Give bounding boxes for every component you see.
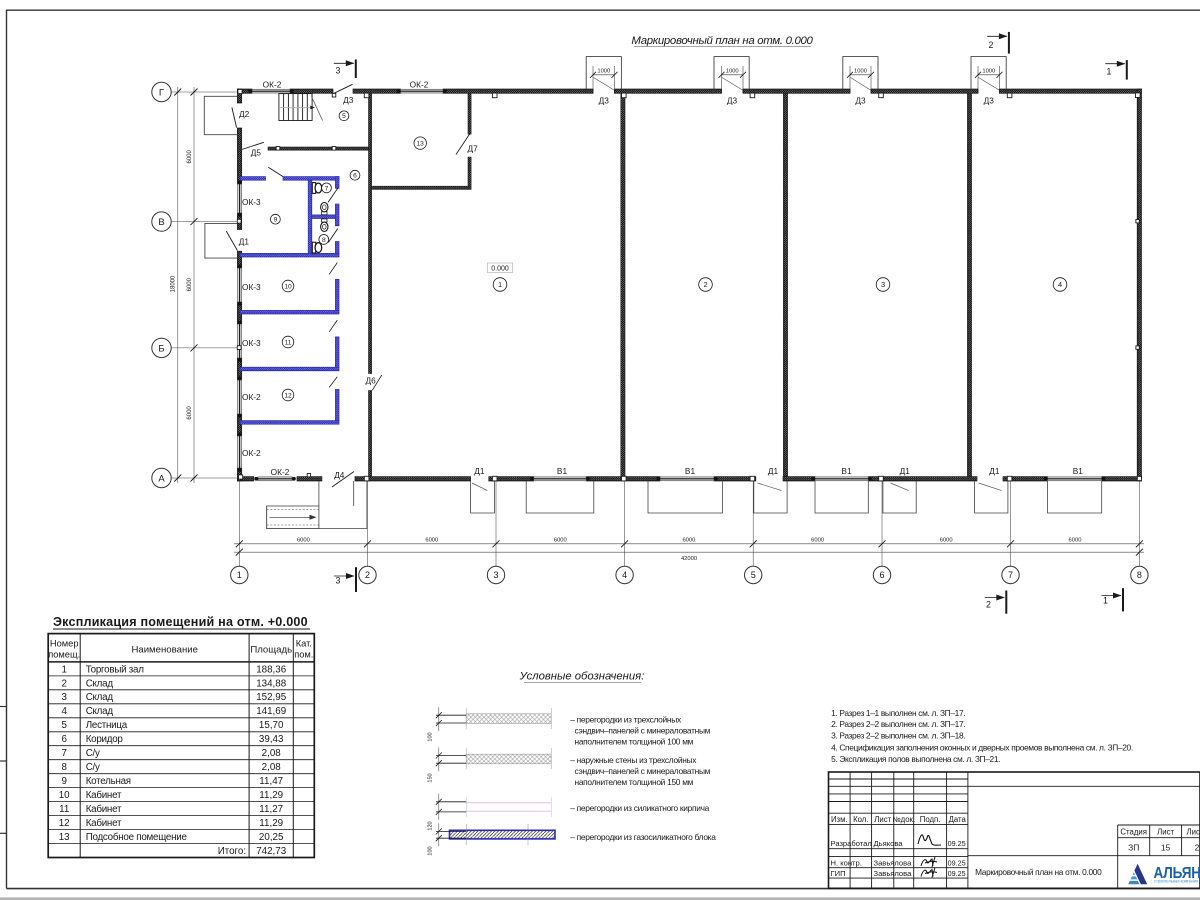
svg-text:Склад: Склад — [86, 706, 114, 717]
svg-text:Г: Г — [159, 87, 164, 98]
svg-text:Д3: Д3 — [727, 96, 738, 106]
svg-text:Дьякова: Дьякова — [874, 839, 904, 848]
svg-text:1000: 1000 — [597, 69, 610, 75]
svg-text:ОК-3: ОК-3 — [242, 338, 261, 348]
svg-text:Коридор: Коридор — [86, 734, 124, 745]
svg-text:09.25: 09.25 — [948, 869, 966, 878]
svg-text:ОК-3: ОК-3 — [242, 282, 261, 292]
svg-text:ОК-3: ОК-3 — [242, 197, 261, 207]
svg-text:Маркировочный план на отм. 0.0: Маркировочный план на отм. 0.000 — [975, 867, 1102, 877]
svg-text:6000: 6000 — [425, 538, 438, 544]
svg-text:Номер: Номер — [50, 639, 79, 649]
svg-text:Экспликация помещений на отм.: Экспликация помещений на отм. +0.000 — [53, 615, 308, 629]
svg-text:9: 9 — [61, 776, 66, 787]
svg-text:ОК-2: ОК-2 — [242, 392, 261, 402]
svg-text:150: 150 — [428, 773, 434, 782]
svg-text:сэндвич–панелей с минераловатн: сэндвич–панелей с минераловатным — [575, 726, 711, 736]
svg-text:Лист: Лист — [874, 815, 891, 824]
svg-text:2: 2 — [703, 280, 707, 289]
svg-text:2: 2 — [986, 599, 991, 609]
svg-text:12: 12 — [284, 392, 292, 399]
svg-text:10: 10 — [59, 790, 70, 801]
svg-text:8: 8 — [322, 237, 326, 244]
svg-text:Н. контр.: Н. контр. — [831, 859, 862, 868]
svg-text:Д6: Д6 — [366, 375, 377, 385]
svg-text:Д1: Д1 — [768, 466, 779, 476]
svg-text:2: 2 — [365, 570, 370, 580]
svg-text:А: А — [158, 473, 165, 484]
svg-text:Котельная: Котельная — [86, 776, 131, 787]
svg-text:2. Разрез 2–2 выполнен см. л.: 2. Разрез 2–2 выполнен см. л. ЗП–17. — [831, 719, 965, 729]
svg-text:0.000: 0.000 — [491, 266, 509, 273]
svg-text:строительная компания: строительная компания — [1154, 879, 1198, 884]
svg-text:Д2: Д2 — [239, 109, 250, 119]
svg-text:2: 2 — [1195, 843, 1200, 853]
svg-text:3. Разрез 2–2 выполнен см. л.: 3. Разрез 2–2 выполнен см. л. ЗП–18. — [831, 730, 965, 740]
svg-text:Д4: Д4 — [334, 470, 345, 480]
svg-text:742,73: 742,73 — [256, 846, 287, 857]
svg-text:Склад: Склад — [86, 678, 114, 689]
svg-text:В1: В1 — [685, 466, 696, 476]
svg-text:100: 100 — [428, 846, 434, 855]
svg-text:8: 8 — [1137, 570, 1142, 580]
svg-text:20,25: 20,25 — [259, 832, 284, 843]
svg-text:4: 4 — [61, 706, 67, 717]
svg-text:6000: 6000 — [187, 149, 193, 163]
svg-text:Кабинет: Кабинет — [86, 804, 122, 815]
svg-text:1: 1 — [498, 280, 502, 289]
svg-text:Д3: Д3 — [855, 96, 866, 106]
svg-text:11,27: 11,27 — [259, 804, 283, 815]
svg-text:2,08: 2,08 — [262, 762, 282, 773]
svg-text:1: 1 — [1103, 595, 1108, 605]
svg-text:42000: 42000 — [681, 556, 697, 562]
svg-text:Наименование: Наименование — [131, 645, 198, 656]
svg-text:4. Спецификация заполнения око: 4. Спецификация заполнения оконных и две… — [831, 742, 1133, 752]
svg-text:С/у: С/у — [86, 762, 100, 773]
svg-text:1000: 1000 — [854, 69, 867, 75]
svg-text:Д7: Д7 — [468, 144, 479, 154]
svg-text:Д5: Д5 — [251, 148, 262, 158]
svg-text:Кабинет: Кабинет — [86, 790, 122, 801]
svg-text:9: 9 — [274, 217, 278, 224]
svg-text:7: 7 — [61, 748, 66, 759]
svg-text:120: 120 — [428, 821, 434, 830]
svg-text:Б: Б — [158, 343, 164, 354]
svg-text:ЗП: ЗП — [1128, 843, 1139, 853]
svg-text:6000: 6000 — [940, 538, 953, 544]
svg-text:сэндвич–панелей с минераловатн: сэндвич–панелей с минераловатным — [575, 766, 711, 776]
svg-text:ОК-2: ОК-2 — [271, 467, 290, 477]
svg-text:№док.: №док. — [892, 815, 915, 824]
svg-text:2: 2 — [61, 678, 66, 689]
svg-text:Д1: Д1 — [239, 236, 250, 246]
svg-text:помещ.: помещ. — [48, 650, 80, 660]
svg-text:1000: 1000 — [726, 69, 739, 75]
svg-text:Стадия: Стадия — [1120, 828, 1147, 837]
svg-text:Кол.: Кол. — [853, 815, 868, 824]
svg-text:8: 8 — [61, 762, 67, 773]
svg-text:6: 6 — [61, 734, 67, 745]
svg-text:Лестница: Лестница — [86, 720, 128, 731]
svg-text:3: 3 — [881, 280, 885, 289]
svg-text:Лист: Лист — [1157, 828, 1174, 837]
svg-text:11,47: 11,47 — [259, 776, 283, 787]
svg-text:Д3: Д3 — [984, 96, 995, 106]
svg-text:6: 6 — [353, 173, 357, 180]
svg-text:141,69: 141,69 — [256, 706, 286, 717]
svg-text:Д3: Д3 — [599, 96, 610, 106]
svg-text:3: 3 — [493, 570, 498, 580]
svg-text:188,36: 188,36 — [256, 664, 287, 675]
svg-text:ОК-2: ОК-2 — [410, 79, 429, 89]
svg-text:13: 13 — [59, 832, 70, 843]
svg-text:6000: 6000 — [1069, 538, 1082, 544]
svg-text:В1: В1 — [557, 466, 568, 476]
svg-text:1: 1 — [237, 570, 242, 580]
svg-text:11: 11 — [59, 804, 69, 815]
svg-text:4: 4 — [1058, 280, 1062, 289]
svg-text:В1: В1 — [1073, 466, 1084, 476]
svg-text:Разработал: Разработал — [831, 839, 872, 848]
svg-text:134,88: 134,88 — [256, 678, 287, 689]
svg-text:3: 3 — [336, 576, 341, 586]
svg-text:наполнителем толщиной 150 мм: наполнителем толщиной 150 мм — [575, 777, 694, 787]
svg-text:Итого:: Итого: — [218, 846, 246, 857]
svg-text:1: 1 — [61, 664, 66, 675]
svg-text:– перегородки из газосиликатно: – перегородки из газосиликатного блока — [570, 832, 716, 842]
svg-text:11,29: 11,29 — [259, 790, 283, 801]
svg-text:15,70: 15,70 — [259, 720, 284, 731]
svg-text:6000: 6000 — [297, 538, 310, 544]
svg-text:6000: 6000 — [187, 406, 193, 420]
svg-text:11,29: 11,29 — [259, 818, 283, 829]
svg-text:11: 11 — [285, 339, 292, 346]
svg-text:Изм.: Изм. — [831, 815, 848, 824]
svg-text:6000: 6000 — [554, 538, 567, 544]
svg-text:ОК-2: ОК-2 — [242, 448, 261, 458]
svg-text:Завьялова: Завьялова — [874, 859, 913, 868]
svg-text:09.25: 09.25 — [948, 839, 966, 848]
svg-text:Д1: Д1 — [474, 466, 485, 476]
svg-text:– перегородки из силикатного к: – перегородки из силикатного кирпича — [570, 803, 709, 813]
svg-text:Подсобное помещение: Подсобное помещение — [86, 832, 188, 843]
svg-text:– наружные стены из трехслойны: – наружные стены из трехслойных — [570, 755, 697, 765]
svg-text:Завьялова: Завьялова — [874, 869, 913, 878]
svg-text:Подп.: Подп. — [920, 815, 941, 824]
svg-text:39,43: 39,43 — [259, 734, 284, 745]
svg-text:Кат.: Кат. — [296, 639, 312, 649]
svg-text:С/у: С/у — [86, 748, 100, 759]
svg-text:09.25: 09.25 — [948, 859, 966, 868]
svg-text:12: 12 — [59, 818, 70, 829]
svg-text:Дата: Дата — [949, 815, 967, 824]
svg-text:6000: 6000 — [682, 538, 695, 544]
svg-text:Условные обозначения:: Условные обозначения: — [519, 671, 645, 683]
svg-text:5: 5 — [61, 720, 67, 731]
svg-text:7: 7 — [1008, 570, 1013, 580]
svg-text:2: 2 — [989, 40, 994, 50]
svg-text:18000: 18000 — [171, 275, 177, 292]
svg-text:15: 15 — [1161, 843, 1171, 853]
svg-text:Д3: Д3 — [343, 95, 354, 105]
svg-text:Площадь: Площадь — [250, 645, 292, 656]
svg-text:7: 7 — [325, 185, 329, 192]
svg-text:Склад: Склад — [86, 692, 114, 703]
svg-text:ОК-2: ОК-2 — [263, 79, 282, 89]
svg-text:13: 13 — [417, 141, 425, 148]
svg-text:5: 5 — [342, 113, 346, 120]
svg-text:3: 3 — [61, 692, 67, 703]
svg-text:ГИП: ГИП — [831, 869, 846, 878]
svg-text:4: 4 — [622, 570, 627, 580]
svg-text:5. Экспликация полов выполнена: 5. Экспликация полов выполнена см. л. ЗП… — [831, 754, 1000, 764]
svg-text:100: 100 — [428, 732, 434, 741]
svg-text:Маркировочный план на отм. 0.0: Маркировочный план на отм. 0.000 — [631, 35, 813, 47]
svg-text:6000: 6000 — [187, 277, 193, 291]
svg-text:1. Разрез 1–1 выполнен см. л.: 1. Разрез 1–1 выполнен см. л. ЗП–17. — [831, 708, 965, 718]
svg-text:3: 3 — [336, 66, 341, 76]
svg-text:6000: 6000 — [811, 538, 824, 544]
svg-text:152,95: 152,95 — [256, 692, 287, 703]
svg-text:1000: 1000 — [982, 69, 995, 75]
svg-text:наполнителем толщиной 100 мм: наполнителем толщиной 100 мм — [575, 737, 694, 747]
svg-text:пом.: пом. — [294, 650, 313, 660]
svg-text:В: В — [158, 217, 164, 228]
svg-text:В1: В1 — [841, 466, 852, 476]
svg-text:Кабинет: Кабинет — [86, 818, 122, 829]
svg-text:Д1: Д1 — [989, 466, 1000, 476]
svg-text:– перегородки из трехслойных: – перегородки из трехслойных — [570, 714, 682, 724]
svg-text:Д1: Д1 — [900, 466, 911, 476]
svg-text:5: 5 — [751, 570, 756, 580]
svg-text:1: 1 — [1107, 66, 1112, 76]
svg-text:2,08: 2,08 — [262, 748, 282, 759]
svg-text:Лист: Лист — [1187, 828, 1200, 837]
svg-text:6: 6 — [879, 570, 884, 580]
svg-text:Торговый зал: Торговый зал — [86, 664, 145, 675]
svg-text:10: 10 — [284, 283, 292, 290]
